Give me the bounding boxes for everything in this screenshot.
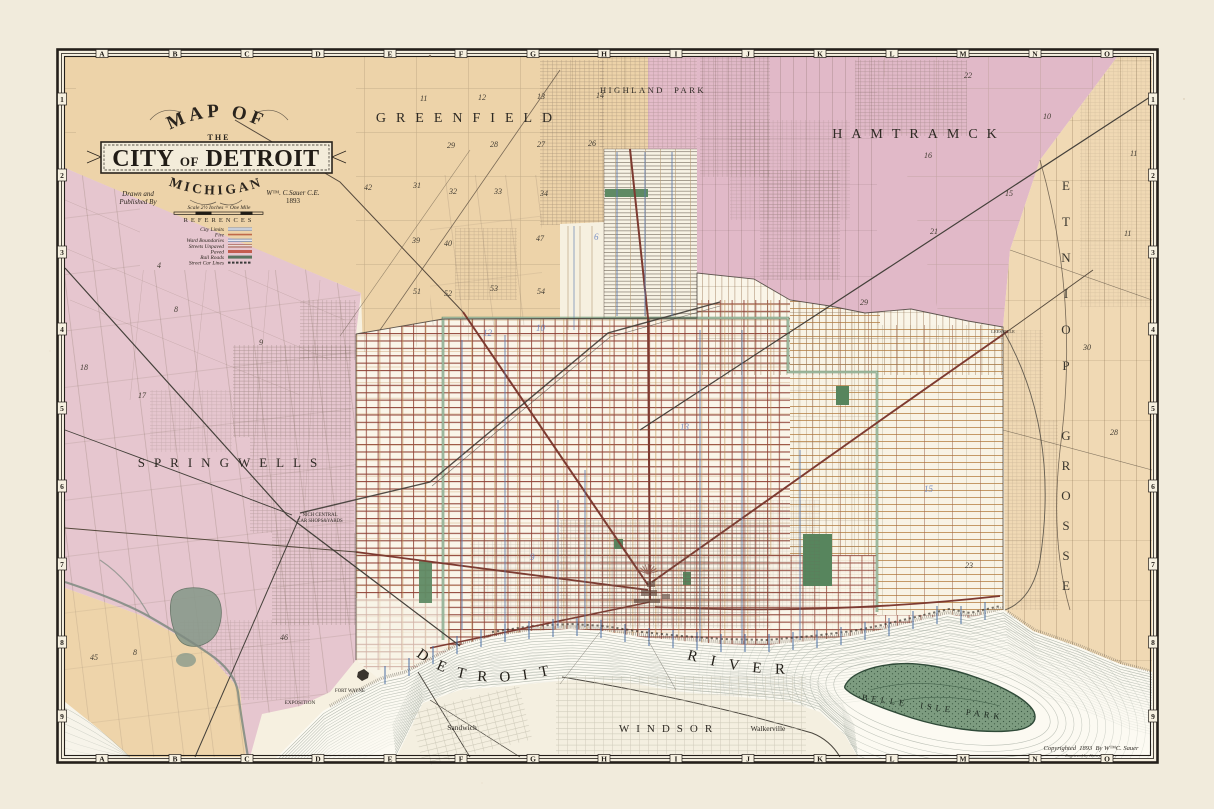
svg-text:THE: THE — [208, 133, 231, 142]
svg-text:9: 9 — [530, 552, 535, 562]
svg-text:EXPOSITION: EXPOSITION — [285, 700, 316, 706]
svg-text:9: 9 — [1151, 712, 1155, 721]
svg-text:9: 9 — [259, 338, 263, 347]
svg-text:8: 8 — [60, 638, 64, 647]
svg-text:2: 2 — [1151, 171, 1155, 180]
svg-text:M: M — [959, 49, 966, 58]
svg-text:S: S — [1062, 518, 1069, 533]
svg-text:7: 7 — [60, 560, 64, 569]
svg-text:D: D — [315, 754, 321, 763]
svg-text:G: G — [530, 49, 536, 58]
svg-text:F: F — [459, 754, 464, 763]
svg-text:8: 8 — [1151, 638, 1155, 647]
svg-text:N: N — [1032, 49, 1038, 58]
svg-text:22: 22 — [964, 71, 972, 80]
svg-text:9: 9 — [60, 712, 64, 721]
svg-text:11: 11 — [1130, 149, 1137, 158]
svg-text:4: 4 — [1151, 325, 1155, 334]
svg-text:G: G — [530, 754, 536, 763]
svg-text:13: 13 — [680, 422, 690, 432]
svg-text:40: 40 — [444, 239, 452, 248]
svg-text:47: 47 — [536, 234, 545, 243]
svg-text:NICH CENTRAL: NICH CENTRAL — [302, 513, 337, 518]
svg-text:M: M — [959, 754, 966, 763]
svg-text:CITY OF DETROIT: CITY OF DETROIT — [112, 146, 319, 172]
svg-text:1: 1 — [60, 95, 64, 104]
svg-text:HIGHLAND PARK: HIGHLAND PARK — [600, 85, 706, 95]
svg-text:18: 18 — [80, 363, 88, 372]
svg-text:8: 8 — [133, 648, 137, 657]
svg-text:E: E — [1062, 178, 1070, 193]
svg-text:Street Car Lines: Street Car Lines — [189, 261, 224, 267]
svg-text:1893: 1893 — [286, 197, 301, 205]
svg-text:Scale 2½ Inches = One Mile: Scale 2½ Inches = One Mile — [188, 204, 252, 211]
svg-text:42: 42 — [364, 183, 372, 192]
svg-text:31: 31 — [412, 181, 421, 190]
svg-text:D: D — [315, 49, 321, 58]
svg-text:52: 52 — [444, 289, 452, 298]
svg-text:10: 10 — [1043, 112, 1051, 121]
svg-text:28: 28 — [1110, 428, 1118, 437]
svg-text:REFERENCES: REFERENCES — [184, 217, 255, 224]
svg-text:E: E — [387, 754, 392, 763]
svg-text:T: T — [1062, 214, 1070, 229]
svg-text:J: J — [746, 754, 750, 763]
svg-text:B: B — [172, 754, 177, 763]
svg-text:A: A — [99, 754, 105, 763]
svg-text:A: A — [99, 49, 105, 58]
svg-text:O: O — [1104, 754, 1110, 763]
svg-text:I: I — [675, 754, 678, 763]
svg-text:SPRINGWELLS: SPRINGWELLS — [138, 455, 327, 470]
svg-text:L: L — [889, 49, 894, 58]
svg-text:C: C — [244, 754, 249, 763]
svg-text:6: 6 — [594, 232, 599, 242]
svg-text:HAMTRAMCK: HAMTRAMCK — [832, 127, 1006, 142]
svg-text:Sandwich: Sandwich — [447, 723, 477, 732]
svg-text:E: E — [1062, 578, 1070, 593]
svg-text:15: 15 — [1005, 189, 1013, 198]
svg-text:J: J — [746, 49, 750, 58]
svg-text:N: N — [1032, 754, 1038, 763]
svg-text:E: E — [387, 49, 392, 58]
svg-text:C: C — [244, 49, 249, 58]
svg-text:CAR SHOPS&YARDS: CAR SHOPS&YARDS — [297, 519, 343, 524]
svg-text:G: G — [1061, 428, 1070, 443]
svg-text:Walkerville: Walkerville — [751, 724, 786, 733]
svg-text:GREENFIELD: GREENFIELD — [376, 111, 562, 126]
svg-text:1: 1 — [1151, 95, 1155, 104]
svg-text:FORT WAYNE: FORT WAYNE — [335, 689, 365, 694]
svg-text:53: 53 — [490, 284, 498, 293]
svg-text:4: 4 — [60, 325, 64, 334]
svg-text:S: S — [1062, 548, 1069, 563]
svg-text:7: 7 — [1151, 560, 1155, 569]
svg-text:34: 34 — [539, 189, 548, 198]
svg-text:3: 3 — [1151, 248, 1155, 257]
svg-text:Copyrighted 1893 By W™C. Sau: Copyrighted 1893 By W™C. Sauer — [1043, 745, 1138, 752]
svg-text:H: H — [601, 754, 607, 763]
svg-text:6: 6 — [1151, 482, 1155, 491]
svg-text:8: 8 — [174, 305, 178, 314]
svg-text:11: 11 — [420, 94, 427, 103]
svg-text:33: 33 — [493, 187, 502, 196]
svg-text:4: 4 — [157, 261, 161, 270]
svg-text:O: O — [1061, 488, 1070, 503]
svg-text:32: 32 — [448, 187, 457, 196]
svg-text:Published By: Published By — [118, 198, 157, 206]
svg-text:I: I — [675, 49, 678, 58]
svg-text:LEESVILLE: LEESVILLE — [991, 329, 1015, 334]
svg-text:I: I — [1064, 286, 1068, 301]
svg-text:L: L — [889, 754, 894, 763]
svg-text:P: P — [1062, 358, 1069, 373]
svg-text:30: 30 — [1082, 343, 1091, 352]
svg-text:54: 54 — [537, 287, 545, 296]
svg-text:6: 6 — [60, 482, 64, 491]
svg-text:10: 10 — [536, 323, 546, 333]
svg-text:15: 15 — [924, 484, 934, 494]
svg-text:12: 12 — [478, 93, 486, 102]
svg-text:23: 23 — [965, 561, 973, 570]
svg-text:16: 16 — [924, 151, 932, 160]
svg-text:O: O — [1104, 49, 1110, 58]
svg-text:12: 12 — [483, 328, 493, 338]
svg-text:14: 14 — [596, 91, 604, 100]
svg-text:29: 29 — [860, 298, 868, 307]
svg-text:5: 5 — [60, 404, 64, 413]
svg-text:13: 13 — [537, 92, 545, 101]
svg-text:F: F — [459, 49, 464, 58]
svg-text:29: 29 — [447, 141, 455, 150]
svg-text:28: 28 — [490, 140, 498, 149]
svg-text:H: H — [601, 49, 607, 58]
svg-text:46: 46 — [280, 633, 288, 642]
svg-text:W™. C.Sauer C.E.: W™. C.Sauer C.E. — [266, 189, 319, 197]
svg-text:N: N — [1061, 250, 1071, 265]
svg-text:11: 11 — [1124, 229, 1131, 238]
svg-text:WINDSOR: WINDSOR — [619, 723, 719, 735]
svg-text:39: 39 — [411, 236, 420, 245]
svg-text:R: R — [1062, 458, 1071, 473]
svg-text:K: K — [817, 49, 823, 58]
svg-text:45: 45 — [90, 653, 98, 662]
svg-text:21: 21 — [930, 227, 938, 236]
svg-text:26: 26 — [588, 139, 596, 148]
svg-text:17: 17 — [138, 391, 147, 400]
svg-text:5: 5 — [1151, 404, 1155, 413]
svg-text:51: 51 — [413, 287, 421, 296]
svg-text:27: 27 — [537, 140, 546, 149]
svg-text:O: O — [1061, 322, 1070, 337]
svg-text:2: 2 — [60, 171, 64, 180]
svg-text:3: 3 — [60, 248, 64, 257]
svg-text:Drawn and: Drawn and — [121, 190, 154, 198]
svg-text:B: B — [172, 49, 177, 58]
svg-text:K: K — [817, 754, 823, 763]
